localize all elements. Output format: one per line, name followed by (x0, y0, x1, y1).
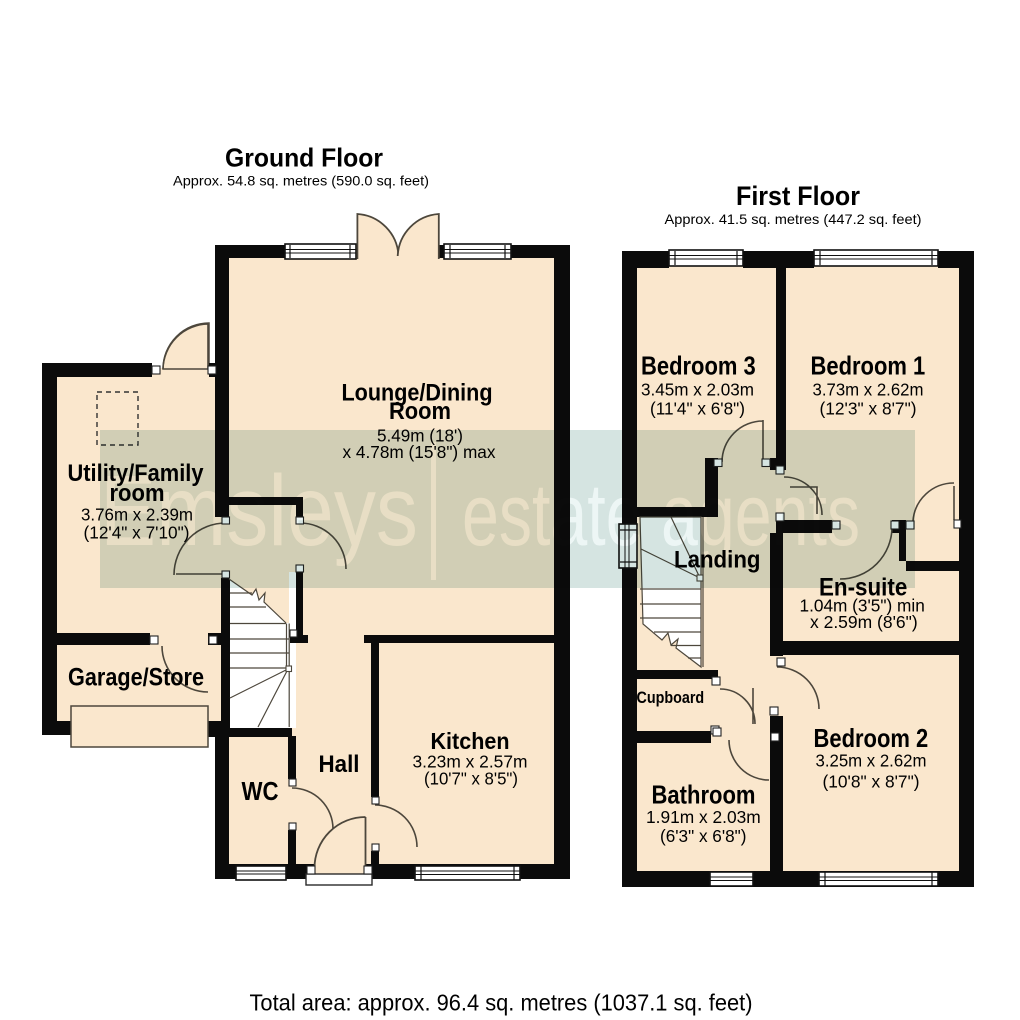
svg-text:(6'3" x 6'8"): (6'3" x 6'8") (660, 826, 747, 846)
svg-text:3.45m x 2.03m: 3.45m x 2.03m (641, 380, 754, 400)
svg-text:WC: WC (242, 778, 279, 806)
svg-text:Ground Floor: Ground Floor (225, 143, 383, 173)
svg-text:Bathroom: Bathroom (652, 780, 756, 810)
svg-text:1.91m x 2.03m: 1.91m x 2.03m (646, 807, 761, 827)
svg-text:Cupboard: Cupboard (637, 688, 705, 707)
svg-text:(12'3" x 8'7"): (12'3" x 8'7") (820, 399, 917, 419)
svg-text:(10'7" x 8'5"): (10'7" x 8'5") (424, 769, 518, 789)
svg-text:3.25m x 2.62m: 3.25m x 2.62m (816, 751, 927, 771)
svg-text:Approx. 54.8 sq. metres (590.0: Approx. 54.8 sq. metres (590.0 sq. feet) (173, 173, 429, 189)
svg-text:Bedroom 1: Bedroom 1 (811, 351, 926, 381)
svg-text:3.73m x 2.62m: 3.73m x 2.62m (813, 380, 924, 400)
svg-text:(11'4" x 6'8"): (11'4" x 6'8") (650, 399, 745, 419)
svg-text:x 2.59m (8'6"): x 2.59m (8'6") (810, 612, 918, 632)
svg-text:estate agents: estate agents (462, 465, 860, 564)
svg-text:Bedroom 2: Bedroom 2 (814, 723, 929, 753)
svg-text:(10'8" x 8'7"): (10'8" x 8'7") (823, 772, 920, 792)
svg-text:Total area: approx. 96.4 sq. m: Total area: approx. 96.4 sq. metres (103… (250, 990, 753, 1016)
svg-text:Kitchen: Kitchen (431, 728, 510, 754)
svg-text:First Floor: First Floor (736, 181, 860, 211)
svg-text:Bedroom 3: Bedroom 3 (641, 351, 756, 381)
svg-text:Hall: Hall (319, 751, 360, 778)
svg-text:Emsleys: Emsleys (100, 455, 418, 567)
svg-text:Garage/Store: Garage/Store (68, 664, 204, 692)
svg-text:Room: Room (389, 398, 451, 425)
svg-text:Approx. 41.5 sq. metres (447.2: Approx. 41.5 sq. metres (447.2 sq. feet) (665, 211, 922, 227)
